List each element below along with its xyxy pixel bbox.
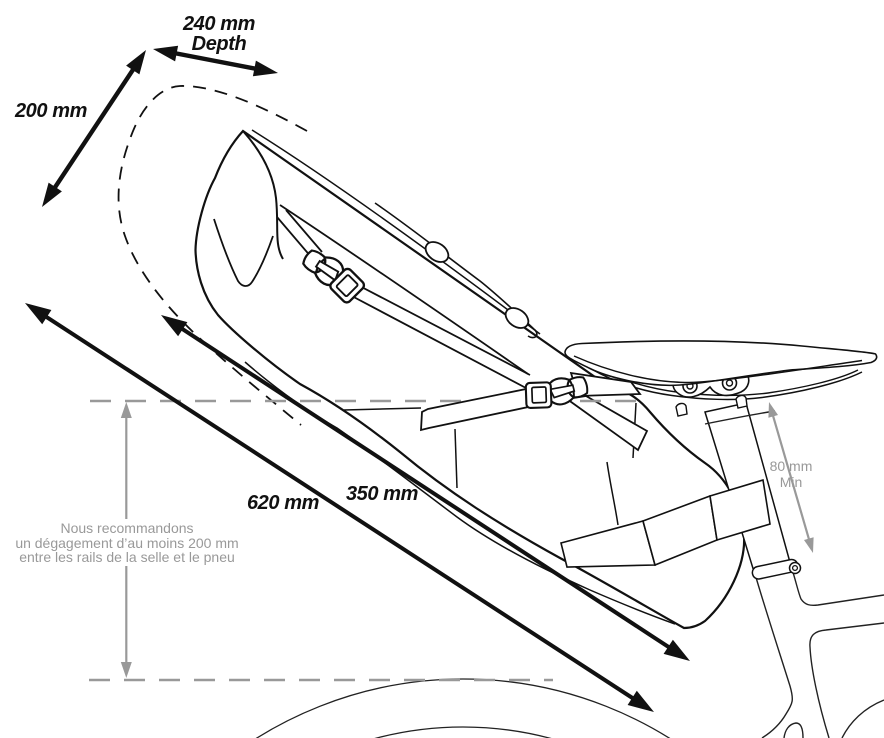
svg-text:80 mm: 80 mm: [770, 458, 813, 474]
svg-text:Nous recommandons: Nous recommandons: [60, 520, 193, 536]
svg-text:350 mm: 350 mm: [346, 483, 418, 505]
svg-text:Min: Min: [780, 474, 803, 490]
svg-text:200 mm: 200 mm: [14, 100, 87, 122]
svg-text:Depth: Depth: [192, 33, 247, 55]
svg-text:entre les rails de la selle et: entre les rails de la selle et le pneu: [19, 549, 235, 565]
svg-text:240 mm: 240 mm: [182, 13, 255, 35]
svg-text:620 mm: 620 mm: [247, 492, 319, 514]
